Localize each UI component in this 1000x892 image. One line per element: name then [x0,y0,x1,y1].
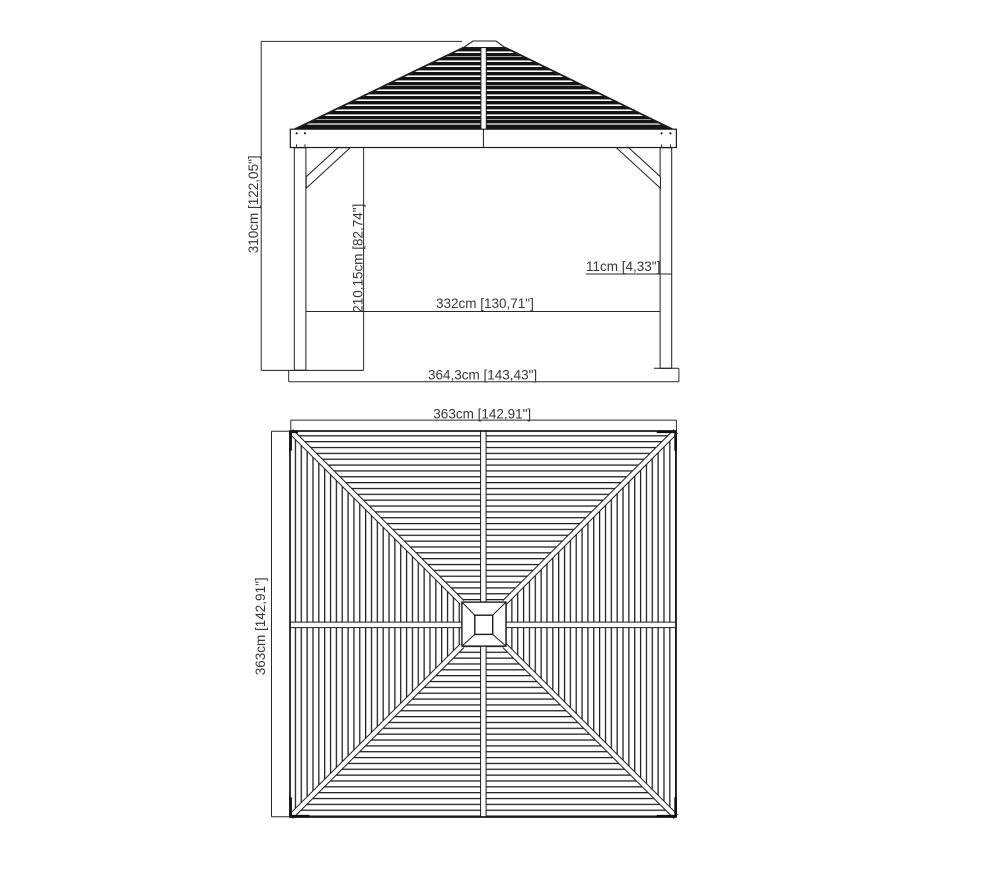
svg-text:210,15cm [82,74"]: 210,15cm [82,74"] [350,204,365,313]
svg-text:11cm [4,33"]: 11cm [4,33"] [586,259,660,274]
svg-text:310cm [122,05"]: 310cm [122,05"] [246,155,261,253]
svg-text:332cm [130,71"]: 332cm [130,71"] [436,296,534,311]
svg-text:363cm [142,91"]: 363cm [142,91"] [433,406,531,421]
svg-text:363cm [142,91"]: 363cm [142,91"] [253,577,268,675]
svg-text:364,3cm [143,43"]: 364,3cm [143,43"] [428,368,537,383]
